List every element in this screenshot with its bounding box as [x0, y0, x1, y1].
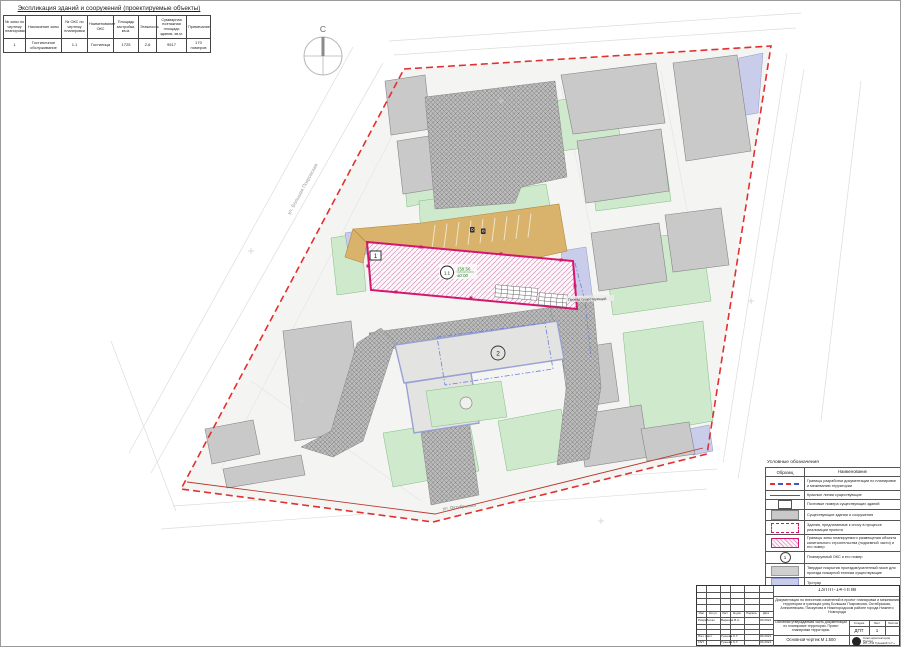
fountain	[460, 397, 472, 409]
existing-building-swatch	[771, 510, 799, 520]
union-of-architects-logo	[852, 637, 861, 646]
role-date: 03.2021	[760, 635, 773, 639]
explication-title: Экспликация зданий и сооружений (проекти…	[3, 5, 215, 12]
elevation-top: 159.56	[457, 267, 471, 272]
col-header: № зоны по чертежу планировки	[4, 16, 26, 39]
chg-header: Лист	[720, 612, 730, 615]
legend-row: Здания, предлагаемые к сносу в процессе …	[766, 520, 900, 534]
road-label-group: Проезд существующий	[566, 295, 614, 302]
stage-label: Стадия	[849, 622, 869, 626]
chg-header: Дата	[759, 612, 773, 615]
role-date: 03.2021	[760, 619, 773, 623]
col-header: Назначение зоны	[26, 16, 62, 39]
role-date: 03.2021	[760, 641, 773, 645]
explication-header-row: № зоны по чертежу планировки Назначение …	[4, 16, 211, 39]
cell-total-area: 9517	[157, 39, 187, 53]
chg-header: № док.	[730, 612, 744, 615]
drawing-scale-label: Основной чертеж М 1:500	[774, 638, 848, 643]
role-name: Гузеева С.Г.	[721, 635, 744, 639]
cell-area: 1725	[114, 39, 139, 53]
north-label: С	[320, 24, 326, 34]
north-arrow: С	[304, 24, 342, 75]
document-description: Документация по внесению изменений в про…	[775, 598, 899, 615]
role-name: Варенов В.А.	[721, 619, 744, 623]
explication-data-row: 1 Гостиничное обслуживание 1.1 Гостиница…	[4, 39, 211, 53]
legend-row: Границы зоны планируемого размещения объ…	[766, 534, 900, 551]
legend-row: Существующие здания и сооружения	[766, 509, 900, 520]
col-header: Наименование ОКС	[88, 16, 114, 39]
sheet-label: Лист	[869, 622, 885, 626]
legend-row: 1 Планируемый ОКС и его номер	[766, 551, 900, 563]
oks-number: 1.1	[444, 271, 451, 276]
col-header: № ОКС по чертежу планировки	[62, 16, 88, 39]
chg-header: Изм.	[697, 612, 706, 615]
org-name-line2: ИП «ТМ Гузеевой С.Г.»	[863, 642, 900, 646]
role-title: ГАП	[698, 641, 720, 645]
site-plan-sheet: 2 1 1.1 159.56	[0, 0, 901, 647]
document-code: 13/ПП-14-ППм	[773, 588, 901, 594]
sheets-label: Листов	[885, 622, 901, 626]
demolition-swatch	[771, 523, 799, 533]
legend-col-name: Наименование	[805, 468, 900, 476]
role-name: Гузеева С.Г.	[721, 641, 744, 645]
planned-zone-swatch	[771, 538, 799, 548]
cell-note: 170 номеров	[187, 39, 211, 53]
cell-floors: 2-6	[139, 39, 157, 53]
title-block: Изм. Кол.уч Лист № док. Подпись Дата Раз…	[696, 585, 900, 646]
hard-surface-swatch	[771, 566, 799, 576]
planned-oks-swatch: 1	[780, 552, 791, 563]
legend-row: Твердые покрытия проездов/усиленный газо…	[766, 563, 900, 577]
col-header: Площадь застройки, кв.м.	[114, 16, 139, 39]
legend-row: Границы разработки документации по плани…	[766, 476, 900, 490]
legend-col-sample: Образец	[766, 468, 805, 476]
legend-row: Красные линии существующие	[766, 490, 900, 499]
cell-zone-purpose: Гостиничное обслуживание	[26, 39, 62, 53]
boundary-dashed-swatch	[770, 483, 800, 485]
house-number-swatch	[778, 500, 792, 509]
stage-value: ДПТ	[849, 628, 869, 633]
cell-zone-no: 1	[4, 39, 26, 53]
col-header: Примечание	[187, 16, 211, 39]
explication-block: Экспликация зданий и сооружений (проекти…	[3, 5, 215, 53]
explication-table: № зоны по чертежу планировки Назначение …	[3, 15, 211, 53]
street-label-left: ул. Большая Покровская	[287, 163, 320, 216]
role-title: Нач. маст.	[698, 635, 720, 639]
building-2-number: 2	[496, 351, 500, 358]
sheet-value: 1	[869, 628, 885, 633]
cell-oks-name: Гостиница	[88, 39, 114, 53]
elevation-bottom: ±0.00	[457, 273, 469, 278]
role-title: Разработал	[698, 619, 720, 623]
cell-oks-no: 1.1	[62, 39, 88, 53]
legend-row: Почтовые номера существующих зданий	[766, 499, 900, 509]
col-header: Этажность	[139, 16, 157, 39]
col-header: Суммарная поэтажная площадь здания, кв.м…	[157, 16, 187, 39]
legend-header-row: Образец Наименование	[766, 468, 900, 476]
section-title: Основная утверждаемая часть документации…	[774, 621, 848, 633]
red-line-swatch	[770, 495, 800, 496]
legend-title: Условные обозначения	[767, 460, 901, 465]
chg-header: Кол.уч	[706, 612, 720, 615]
chg-header: Подпись	[744, 612, 759, 615]
